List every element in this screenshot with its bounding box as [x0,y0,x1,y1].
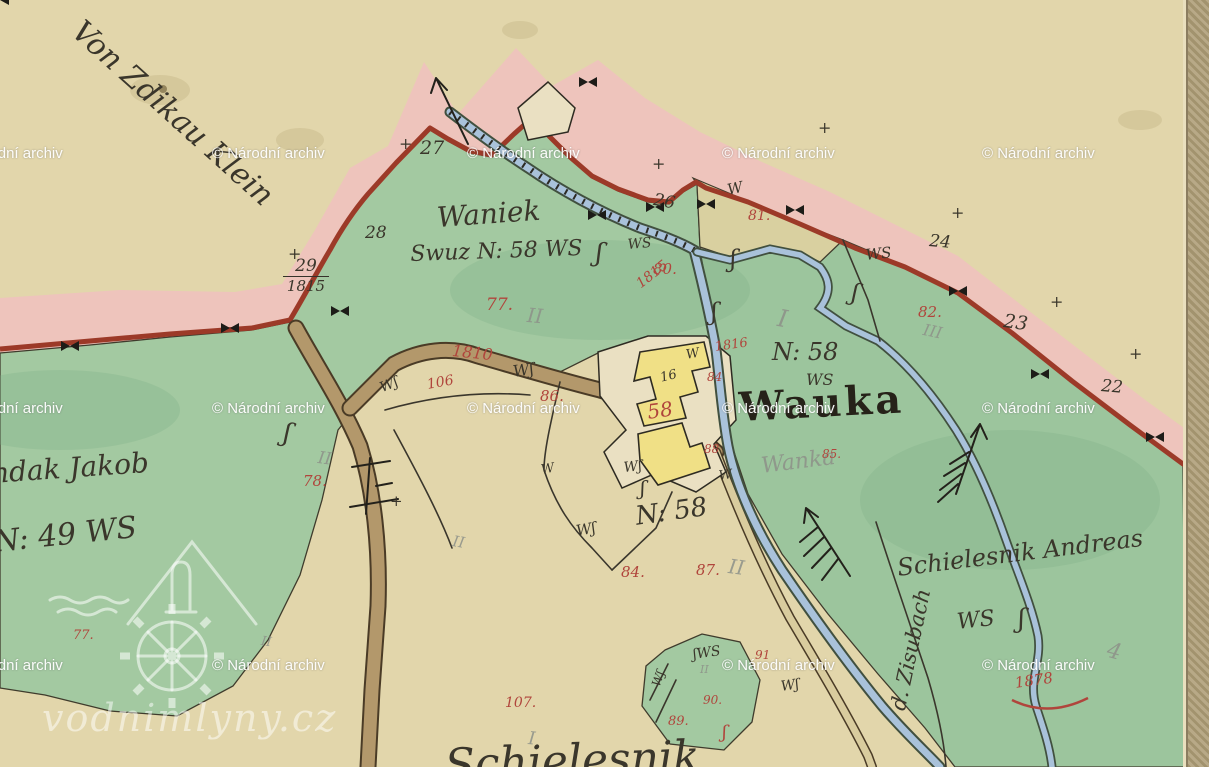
map-label-p84a: 84 [707,371,722,383]
map-label-w-path: Wʃ [780,677,800,693]
map-label-pen-i-1: I [776,306,790,331]
map-label-pen-ii-2: II [317,450,333,469]
map-label-w-mid4: W [718,468,733,483]
map-label-cross-6: + [1050,294,1063,310]
map-label-b28: 28 [365,225,387,242]
map-label-b26: 26 [652,192,676,212]
map-label-von-zdikau-klein: Von Zdikau Klein [66,16,279,212]
map-label-cross-5: + [951,205,964,221]
map-label-p85: 85. [822,448,841,460]
map-label-ws-2: WS [865,245,892,263]
map-label-pen-4: 4 [1104,640,1123,665]
map-label-sw-2: ʃ [595,240,604,267]
map-label-p106: 106 [426,373,455,391]
map-label-pen-ii-4: II [727,556,745,578]
map-label-n58-upper: N: 58 [772,340,838,364]
map-label-cross-2: + [399,136,412,152]
map-label-sw-red: ʃ [722,724,727,742]
map-label-b22: 22 [1101,378,1124,397]
map-label-w-mid2: Wʃ [623,459,643,475]
map-label-pen-ii-5: II [260,635,272,649]
map-label-p78: 78. [303,474,327,489]
map-label-y1878: 1878 [1014,671,1054,691]
map-label-p81: 81. [748,209,770,223]
map-label-p91: 91 [755,649,770,661]
map-label-p107: 107. [505,696,536,710]
map-label-y1816: 1816 [714,336,749,353]
map-label-w-road: Wʃ [512,361,535,380]
map-label-sw-6: ʃ [1018,606,1025,632]
map-label-p77: 77. [486,297,513,314]
map-label-cross-8: + [390,494,403,509]
map-label-ws-schielesnik: WS [956,608,996,634]
map-label-ws-1: WS [627,236,652,252]
map-label-pen-ii-3: II [451,534,465,551]
map-label-bldg-16: 16 [659,368,678,385]
map-label-y1815: 1815 [634,258,671,291]
map-label-w-mid5: W [540,462,555,477]
map-label-pen-ii-6: II [700,664,709,675]
map-label-sw-7: ʃ [640,478,645,498]
map-label-w-khaki: W [726,180,744,198]
map-label-waniek: Waniek [436,197,541,232]
map-binding-edge [1183,0,1209,767]
map-label-cross-3: + [652,156,665,172]
map-label-pen-ii-1: II [526,305,543,326]
map-label-pen-iii: III [922,322,944,342]
map-label-y1810: 1810 [451,343,493,363]
fraction-numerator: 29 [283,256,329,276]
map-label-w-vroad: Wʃ [378,375,400,395]
map-label-n49: N: 49 WS [0,513,138,558]
map-label-cross-4: + [818,120,831,136]
map-canvas[interactable]: Von Zdikau KleinWaniekSwuz N: 58 WSN: 58… [0,0,1209,767]
map-label-sws-patch: ʃWS [692,644,721,662]
map-label-bldg-58: 58 [646,398,674,421]
map-label-schielesnik: Schielesnik Andreas [896,526,1144,580]
map-label-b27: 27 [420,139,444,158]
map-label-wauka: Wauka [738,379,905,428]
map-label-n58-lower: N: 58 [634,494,709,530]
map-label-b24: 24 [929,233,952,252]
map-label-cross-7: + [1129,346,1142,362]
map-label-zisubach: d. Zisubach [888,587,934,712]
map-label-sw-4: ʃ [850,280,861,305]
map-label-p77b: 77. [73,629,94,642]
map-label-waniek-detail: Swuz N: 58 WS [410,238,583,266]
map-label-ndak-jakob: ndak Jakob [0,449,150,488]
map-label-bottom-script: Schielesnik [444,735,700,767]
boundary-fraction-label: 29 1815 [283,256,329,295]
fraction-denominator: 1815 [283,276,329,295]
map-label-p90: 90. [703,694,722,706]
map-label-sw-3: ʃ [730,247,737,271]
map-label-w-mid1: W [685,347,700,362]
map-label-sw-5: ʃ [711,300,718,324]
map-label-p86: 86. [540,389,564,404]
map-label-sw-1: ʃ [281,420,292,447]
map-label-p84b: 84. [621,565,645,580]
map-label-p87: 87. [696,563,720,578]
map-label-b23: 23 [1002,312,1029,334]
map-label-p82: 82. [918,305,942,320]
map-label-w-mid3: Wʃ [575,521,597,539]
map-label-p88: 88 [704,443,719,455]
map-label-p89: 89. [668,715,689,728]
map-annotations-layer: Von Zdikau KleinWaniekSwuz N: 58 WSN: 58… [0,0,1209,767]
map-label-w-patch: Wʃ [650,669,667,688]
